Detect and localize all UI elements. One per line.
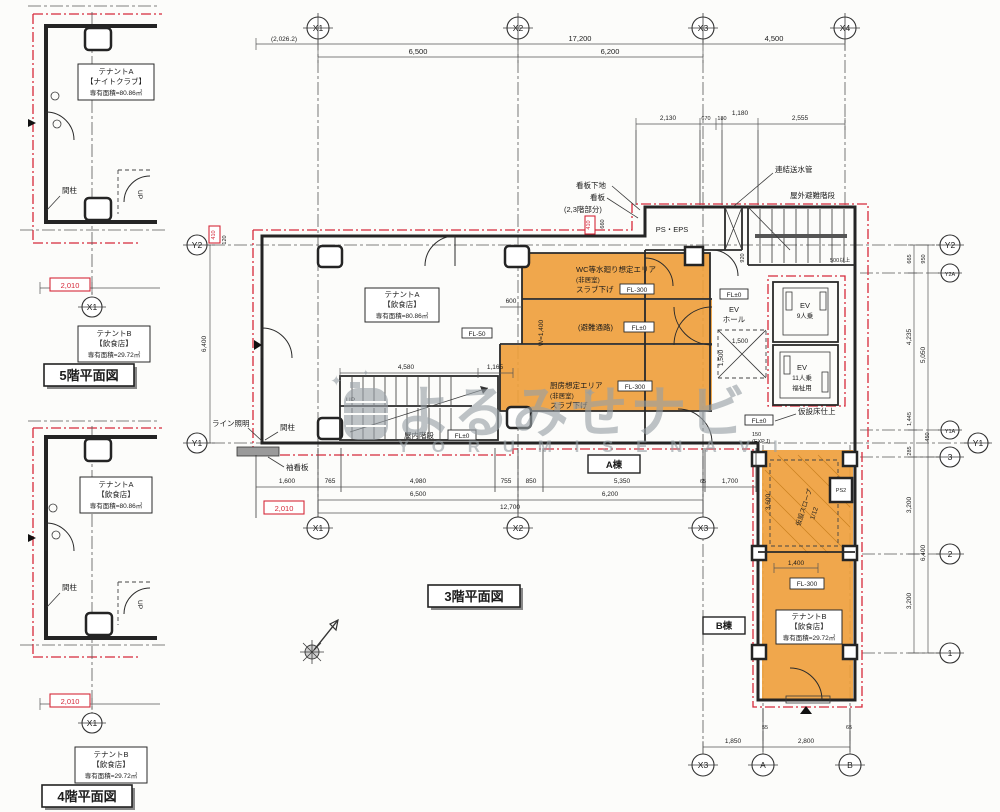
dim-w1400: W=1,400 xyxy=(538,320,545,347)
dim-r285: 285 xyxy=(907,446,913,455)
ev11-label-3: 福祉用 xyxy=(792,383,812,392)
sparkle-icon: ✦ xyxy=(330,373,343,390)
grid-marker-x3-bottom: X3 xyxy=(688,517,718,539)
tenant-a-5f-name: テナントA xyxy=(98,67,133,76)
sotokaidan-label: 屋外避難階段 xyxy=(790,190,835,200)
grid-marker-x1-5f: X1 xyxy=(78,297,106,317)
dim-sub4: 1,180 xyxy=(732,110,749,117)
dim-b5: 850 xyxy=(526,478,537,485)
ps2-label: PS2 xyxy=(836,488,846,494)
wc-area-fl300: FL-300 xyxy=(627,287,648,294)
svg-text:Y2A: Y2A xyxy=(945,272,956,278)
north-arrow xyxy=(300,620,338,664)
mabashira-label-5f: 間柱 xyxy=(62,185,77,195)
dim-2010-4f: 2,010 xyxy=(61,697,80,706)
grid-marker-3-right: 3 xyxy=(936,447,964,467)
corridor-fl0: FL±0 xyxy=(632,325,647,332)
dim-sub5: 2,555 xyxy=(792,115,809,122)
door-left-wall xyxy=(262,328,292,358)
dim-sign-410: 410 xyxy=(586,220,592,229)
dim-r1445: 1,445 xyxy=(907,412,913,426)
ev-block: EV 9人乗 EV 11人乗 福祉用 xyxy=(768,276,845,406)
grid-marker-y2a-right: Y2A xyxy=(938,264,962,282)
ev9-label-2: 9人乗 xyxy=(797,311,814,320)
dim-r665: 665 xyxy=(907,254,913,263)
svg-text:Y1: Y1 xyxy=(192,438,203,448)
ev9-label-1: EV xyxy=(800,301,810,310)
dim-bw1850: 1,850 xyxy=(725,738,742,745)
tenant-b-3f-name: テナントB xyxy=(791,612,826,621)
bwing-bottom-dimensions: 1,850 2,800 55 65 X3 A B xyxy=(688,708,865,776)
dim-bw1400: 1,400 xyxy=(788,560,805,567)
kasetsu-yuka-label: 仮設床仕上 xyxy=(798,406,836,416)
dim-r950: 950 xyxy=(921,254,927,263)
tenant-a-4f-type: 【飲食店】 xyxy=(97,489,135,499)
grid-marker-a-bwing: A xyxy=(748,754,778,776)
floor5-caption: テナントB 【飲食店】 専有面積=29.72㎡ 5階平面図 xyxy=(44,326,150,389)
stair-rail xyxy=(755,234,847,238)
dim-r450: 450 xyxy=(925,432,931,441)
wing-b-label: B棟 xyxy=(716,620,733,632)
dim-r4235: 4,235 xyxy=(906,328,913,345)
svg-text:3: 3 xyxy=(948,452,953,462)
tenant-b-3f-type: 【飲食店】 xyxy=(790,621,828,631)
grid-marker-y1-right: Y1 xyxy=(964,433,992,453)
dim-ev-1500h: 1,500 xyxy=(732,338,749,345)
dim-b10: 6,200 xyxy=(602,491,619,498)
up-label-5f: UP xyxy=(136,190,143,199)
tenant-a-3f-name: テナントA xyxy=(384,290,419,299)
drawing-canvas: UP テナントA 【ナイトクラブ】 専有面積=80.86㎡ 間柱 2,010 X… xyxy=(0,0,1000,812)
kanban-note-label: (2,3階部分) xyxy=(564,204,602,214)
ev-hall-label-2: ホール xyxy=(723,315,746,324)
floor5-mini-plan: UP テナントA 【ナイトクラブ】 専有面積=80.86㎡ 間柱 2,010 X… xyxy=(20,6,165,317)
dim-bw6400: 6,400 xyxy=(920,544,927,561)
svg-text:X1: X1 xyxy=(87,302,98,312)
svg-text:X1: X1 xyxy=(313,23,324,33)
dim-sub3: 180 xyxy=(717,116,726,122)
dim-left-120: 120 xyxy=(222,235,228,244)
svg-text:Y1A: Y1A xyxy=(945,429,956,435)
dim-x3x4: 4,500 xyxy=(765,34,784,43)
dim-b9: 6,500 xyxy=(410,491,427,498)
bwing-fl300: FL-300 xyxy=(797,581,818,588)
wing-a-label: A棟 xyxy=(606,459,623,471)
dim-x2x3: 6,200 xyxy=(601,47,620,56)
dim-left-6400: 6,400 xyxy=(201,335,208,352)
wc-area-line2: (非居室) xyxy=(576,275,600,284)
watermark-jp: よるみせナビ xyxy=(396,381,748,444)
floor4-title: 4階平面図 xyxy=(57,789,116,804)
ev-hall-fl0: FL±0 xyxy=(727,292,742,299)
grid-marker-2-right: 2 xyxy=(936,544,964,564)
pseps-label: PS・EPS xyxy=(656,225,689,234)
floor4-mini-plan: UP テナントA 【飲食店】 専有面積=80.86㎡ 間柱 2,010 X1 テ… xyxy=(20,421,165,810)
dim-bw55: 55 xyxy=(762,725,768,731)
dim-b3: 4,980 xyxy=(410,478,427,485)
up-label-4f: UP xyxy=(136,600,143,609)
dim-b6: 5,350 xyxy=(614,478,631,485)
svg-text:Y1: Y1 xyxy=(973,438,984,448)
outdoor-stair xyxy=(748,207,847,263)
corridor-zone xyxy=(522,300,712,344)
svg-text:B: B xyxy=(847,760,853,770)
svg-text:X3: X3 xyxy=(698,23,709,33)
tenant-b-4f-name: テナントB xyxy=(93,750,128,759)
dim-sub1: 2,130 xyxy=(660,115,677,122)
svg-text:X3: X3 xyxy=(698,760,709,770)
dim-b1: 1,600 xyxy=(279,478,296,485)
svg-text:Y2: Y2 xyxy=(192,240,203,250)
dim-sign-660: 660 xyxy=(600,219,606,228)
dim-2010-5f: 2,010 xyxy=(61,281,80,290)
corridor-label: (避難通路) xyxy=(578,322,613,332)
tenant-b-3f-area: 専有面積=29.72㎡ xyxy=(783,633,836,642)
floor3-title: 3階平面図 xyxy=(444,589,503,604)
dim-b11: 12,700 xyxy=(500,504,520,511)
floor5-title: 5階平面図 xyxy=(59,368,118,383)
grid-marker-b-bwing: B xyxy=(835,754,865,776)
sode-kanban-shape xyxy=(237,447,279,456)
line-light-label: ライン照明 xyxy=(212,419,250,428)
wc-area-zone xyxy=(522,253,710,299)
dim-left-410: 410 xyxy=(211,230,217,239)
grid-marker-y1a-right: Y1A xyxy=(938,421,962,439)
dim-b2: 765 xyxy=(325,478,336,485)
svg-text:1: 1 xyxy=(948,648,953,658)
svg-text:Y2: Y2 xyxy=(945,240,956,250)
tenant-a-3f-type: 【飲食店】 xyxy=(383,299,421,309)
wc-area-line1: WC等水廻り想定エリア xyxy=(576,264,656,274)
min500-label: 500以上 xyxy=(830,256,851,264)
captions: A棟 B棟 3階平面図 xyxy=(300,455,745,664)
dim-sub2: 670 xyxy=(701,116,710,122)
grid-marker-x3-top: X3 xyxy=(688,13,718,43)
bottom-dimensions: 1,600 765 4,980 755 850 5,350 65 1,700 6… xyxy=(256,448,756,539)
dim-c600: 600 xyxy=(506,298,517,305)
grid-marker-x1-bottom: X1 xyxy=(303,517,333,539)
grid-marker-x2-bottom: X2 xyxy=(503,517,533,539)
tenant-b-4f-area: 専有面積=29.72㎡ xyxy=(85,771,138,780)
watermark: ✦ ✦ よるみせナビ ✦ Y O R U M I S E N A V I xyxy=(330,368,787,456)
dim-920: 920 xyxy=(740,253,746,262)
dim-r5050: 5,050 xyxy=(920,346,927,363)
door-stair-entry xyxy=(712,250,738,276)
watermark-en: Y O R U M I S E N A V I xyxy=(398,437,787,456)
dim-b8: 1,700 xyxy=(722,478,739,485)
ev11-label-1: EV xyxy=(797,363,807,372)
dim-x1x2: 6,500 xyxy=(409,47,428,56)
ev-hall-label-1: EV xyxy=(729,305,739,314)
grid-marker-x3-bwing: X3 xyxy=(688,754,718,776)
door-top-1 xyxy=(425,236,455,266)
svg-text:A: A xyxy=(760,760,766,770)
tenant-b-5f-type: 【飲食店】 xyxy=(95,338,133,348)
tenant-b-5f-area: 専有面積=29.72㎡ xyxy=(88,350,141,359)
dim-total-x: 17,200 xyxy=(569,34,592,43)
dim-bw3600: 3,600 xyxy=(765,493,772,510)
tenant-a-4f-area: 専有面積=80.86㎡ xyxy=(90,501,143,510)
svg-text:X2: X2 xyxy=(513,23,524,33)
mabashira-label-4f: 間柱 xyxy=(62,582,77,592)
svg-text:X3: X3 xyxy=(698,523,709,533)
right-dimensions: 665 950 4,235 5,050 1,445 450 285 3,200 … xyxy=(906,235,992,663)
sode-kanban-label: 袖看板 xyxy=(286,462,309,472)
section-mark-4f xyxy=(28,534,36,542)
dim-stair-4580: 4,580 xyxy=(398,364,415,371)
tenant-a-5f-type: 【ナイトクラブ】 xyxy=(86,76,146,86)
dim-b7: 65 xyxy=(700,479,706,485)
dim-ev-1500v: 1,500 xyxy=(718,349,725,366)
grid-marker-1-right: 1 xyxy=(936,643,964,663)
fl0-bottom-right: FL±0 xyxy=(752,418,767,425)
kanban-label: 看板 xyxy=(590,192,605,202)
tenant-a-4f-name: テナントA xyxy=(98,480,133,489)
tenant-a-3f-area: 専有面積=80.86㎡ xyxy=(376,311,429,320)
svg-text:X1: X1 xyxy=(87,718,98,728)
section-mark xyxy=(28,119,36,127)
grid-marker-x1-4f: X1 xyxy=(78,713,106,733)
svg-text:X1: X1 xyxy=(313,523,324,533)
kanban-shitaji-label: 看板下地 xyxy=(576,180,606,190)
floorplan-sheet: UP テナントA 【ナイトクラブ】 専有面積=80.86㎡ 間柱 2,010 X… xyxy=(0,0,1000,812)
dim-2010-main: 2,010 xyxy=(275,504,294,513)
ev11-label-2: 11人乗 xyxy=(792,373,812,382)
tenant-b-5f-name: テナントB xyxy=(96,329,131,338)
wc-area-line3: スラブ下げ xyxy=(576,284,614,294)
svg-text:X2: X2 xyxy=(513,523,524,533)
svg-text:2: 2 xyxy=(948,549,953,559)
dim-bw2800: 2,800 xyxy=(798,738,815,745)
renketsu-label: 連結送水管 xyxy=(775,164,813,174)
dim-stair-1165: 1,165 xyxy=(487,364,504,371)
sparkle-icon-2: ✦ xyxy=(362,368,370,378)
dim-total-left: (2,026.2) xyxy=(271,36,297,43)
fl-50-label: FL-50 xyxy=(469,331,486,338)
sparkle-icon-3: ✦ xyxy=(584,385,597,402)
dim-b4: 755 xyxy=(501,478,512,485)
ev-hall: FL±0 EV ホール 1,500 1,500 xyxy=(718,289,766,378)
dim-bw65: 65 xyxy=(846,725,852,731)
dim-bw3200b: 3,200 xyxy=(906,592,913,609)
tenant-b-4f-type: 【飲食店】 xyxy=(92,759,130,769)
grid-marker-x2-top: X2 xyxy=(503,13,533,43)
tenant-a-5f-area: 専有面積=80.86㎡ xyxy=(90,88,143,97)
mabashira-label-main: 間柱 xyxy=(280,422,295,432)
grid-marker-y2-right: Y2 xyxy=(936,235,964,255)
standpipe-shaft xyxy=(725,207,742,250)
svg-text:X4: X4 xyxy=(840,23,851,33)
dim-bw3200a: 3,200 xyxy=(906,496,913,513)
